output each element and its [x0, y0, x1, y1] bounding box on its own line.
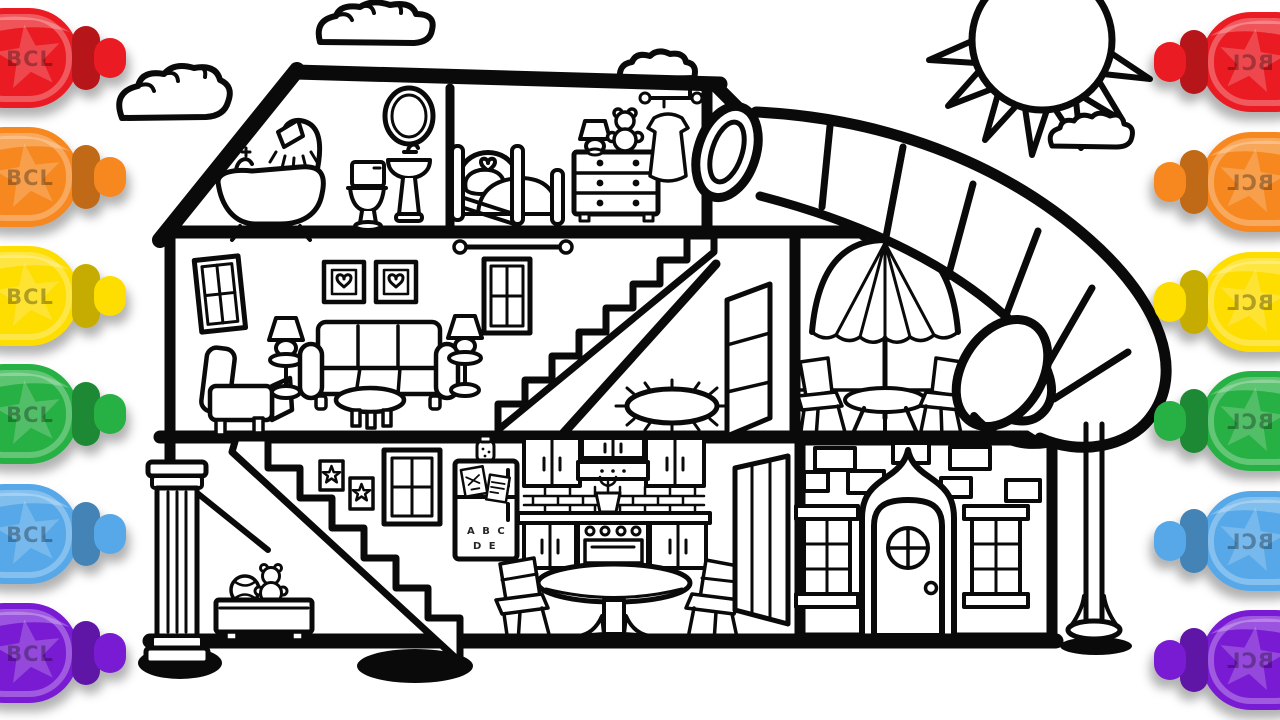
marker-label: BCL — [6, 166, 54, 190]
facade-window-left-icon — [796, 506, 858, 607]
window-left-icon — [194, 256, 245, 332]
heart-picture-icon — [324, 262, 364, 302]
range-hood-icon — [578, 462, 648, 479]
marker-label: BCL — [6, 47, 54, 71]
kitchen: A B C D E — [455, 436, 788, 642]
playroom-window-icon — [384, 450, 440, 524]
stove-oven-icon — [578, 523, 648, 568]
coloring-page: A B C D E — [0, 0, 1280, 720]
marker-label: BCL — [6, 642, 54, 666]
porch-column-icon — [146, 462, 208, 663]
marker-label: BCL — [1226, 649, 1274, 673]
facade-window-right-icon — [964, 506, 1028, 607]
marker-label: BCL — [6, 285, 54, 309]
marker-label: BCL — [1226, 51, 1274, 75]
coloring-page-canvas: A B C D E — [0, 0, 1280, 720]
closet-door-icon — [727, 284, 770, 436]
marker-label: BCL — [1226, 410, 1274, 434]
cookie-jar-icon — [477, 436, 494, 461]
marker-label: BCL — [1226, 171, 1274, 195]
toy-box-icon — [216, 600, 312, 640]
window-right-icon — [484, 259, 530, 333]
star-picture-icon — [320, 461, 343, 490]
marker-label: BCL — [1226, 291, 1274, 315]
mirror-icon — [385, 88, 433, 144]
star-picture-icon — [350, 478, 373, 509]
kitchen-door-icon — [735, 456, 788, 624]
fridge-magnets-row2: D E — [473, 541, 498, 552]
facade — [796, 440, 1052, 638]
marker-label: BCL — [6, 523, 54, 547]
refrigerator-icon: A B C D E — [455, 461, 517, 559]
marker-label: BCL — [1226, 530, 1274, 554]
heart-picture-icon — [376, 262, 416, 302]
marker-label: BCL — [6, 403, 54, 427]
fridge-magnets-row1: A B C — [467, 526, 507, 537]
dresser-icon — [574, 152, 658, 221]
